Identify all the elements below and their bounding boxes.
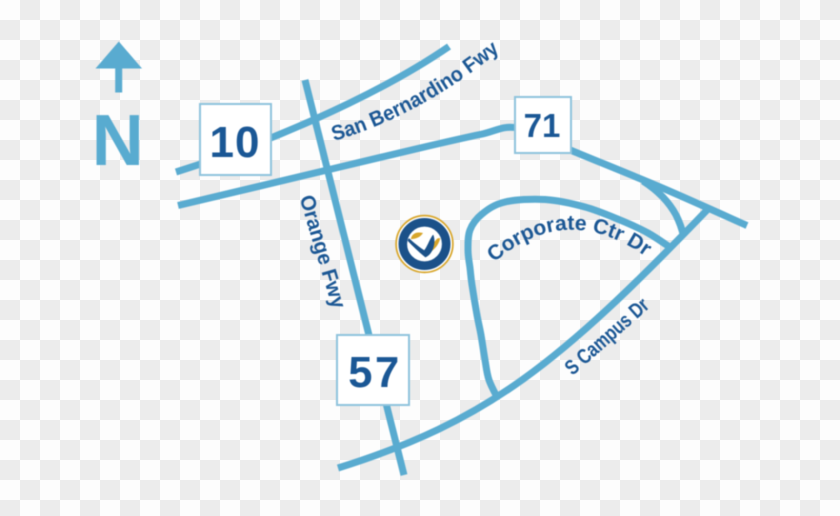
svg-text:San Bernardino Fwy: San Bernardino Fwy bbox=[329, 37, 503, 146]
svg-text:57: 57 bbox=[348, 349, 401, 397]
svg-text:10: 10 bbox=[210, 118, 261, 167]
svg-text:N: N bbox=[92, 101, 144, 181]
svg-text:Corporate Ctr Dr: Corporate Ctr Dr bbox=[483, 212, 656, 267]
svg-text:71: 71 bbox=[524, 107, 561, 144]
svg-text:Orange Fwy: Orange Fwy bbox=[295, 192, 350, 311]
